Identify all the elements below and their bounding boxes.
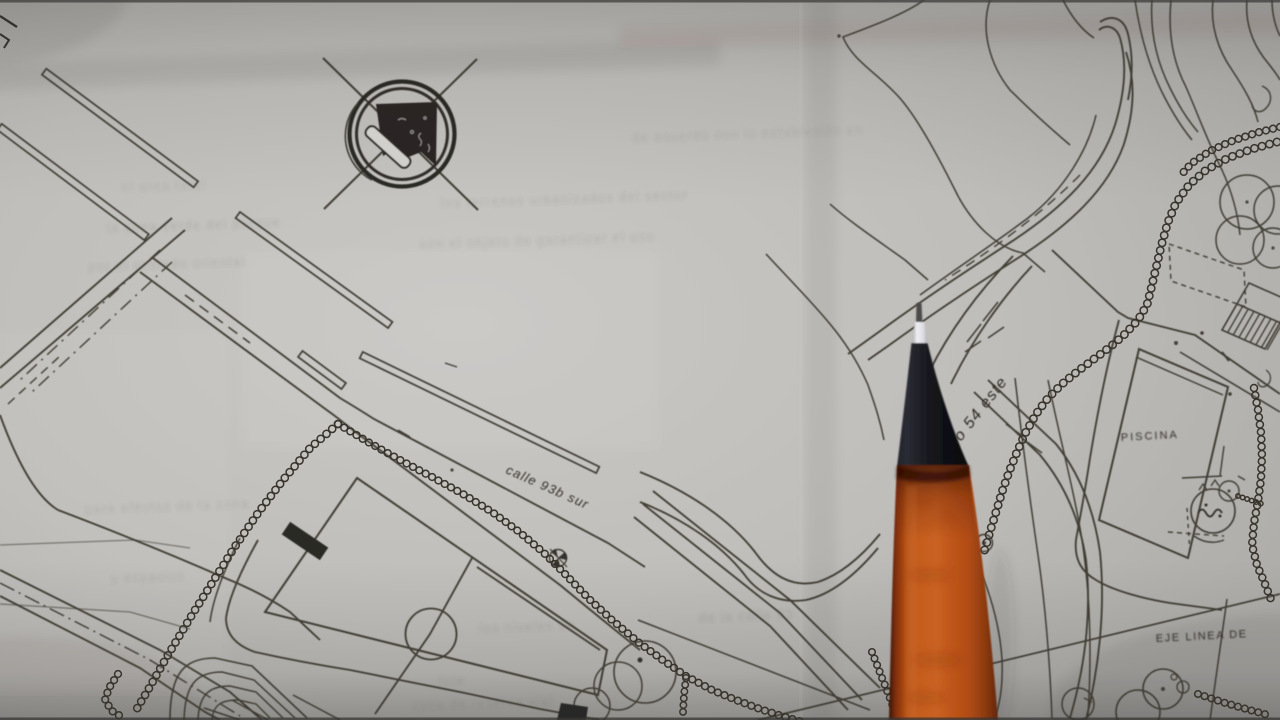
svg-text:lote: lote xyxy=(439,673,466,688)
svg-text:y espacios: y espacios xyxy=(111,569,186,586)
